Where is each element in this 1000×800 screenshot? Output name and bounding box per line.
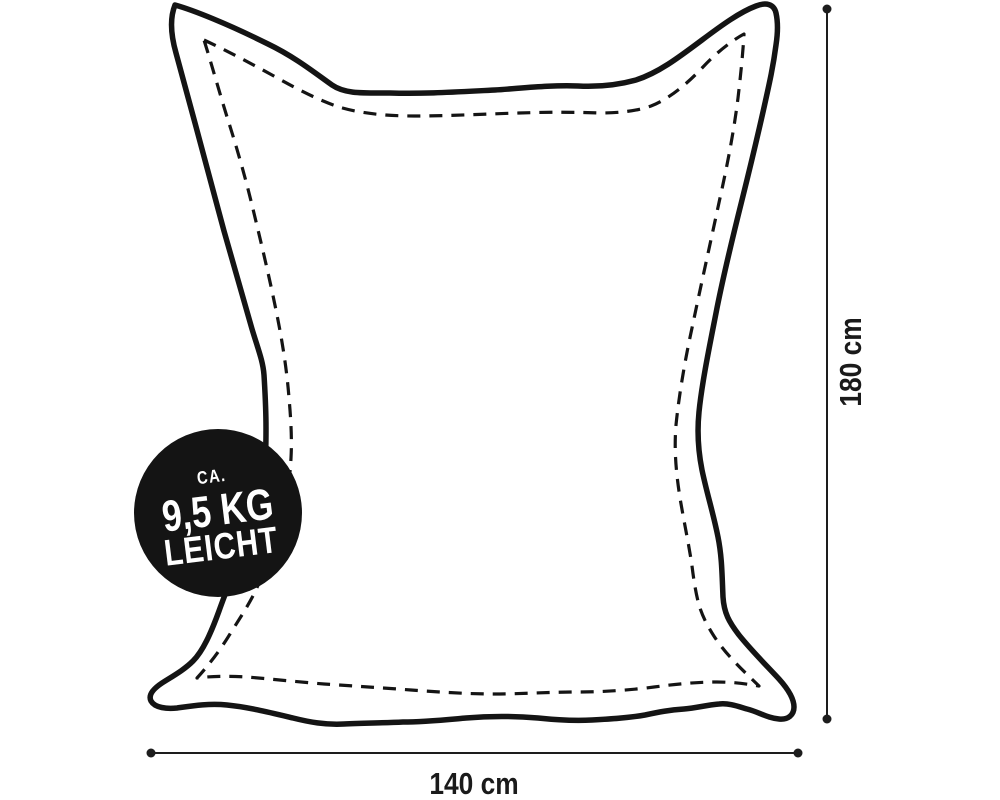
width-dimension: 140 cm	[147, 749, 803, 800]
height-dimension-label: 180 cm	[834, 317, 868, 406]
height-dimension: 180 cm	[823, 5, 869, 724]
product-dimension-diagram: CA. 9,5 KG LEICHT 180 cm 140 cm	[0, 0, 1000, 800]
width-dimension-label: 140 cm	[429, 767, 518, 800]
height-dimension-endpoint-bottom	[823, 715, 832, 724]
height-dimension-endpoint-top	[823, 5, 832, 14]
width-dimension-endpoint-left	[147, 749, 156, 758]
seam-stitch-line	[197, 34, 759, 694]
diagram-canvas: CA. 9,5 KG LEICHT 180 cm 140 cm	[0, 0, 1000, 800]
weight-badge: CA. 9,5 KG LEICHT	[134, 429, 302, 597]
beanbag-outline	[150, 4, 794, 724]
width-dimension-endpoint-right	[794, 749, 803, 758]
